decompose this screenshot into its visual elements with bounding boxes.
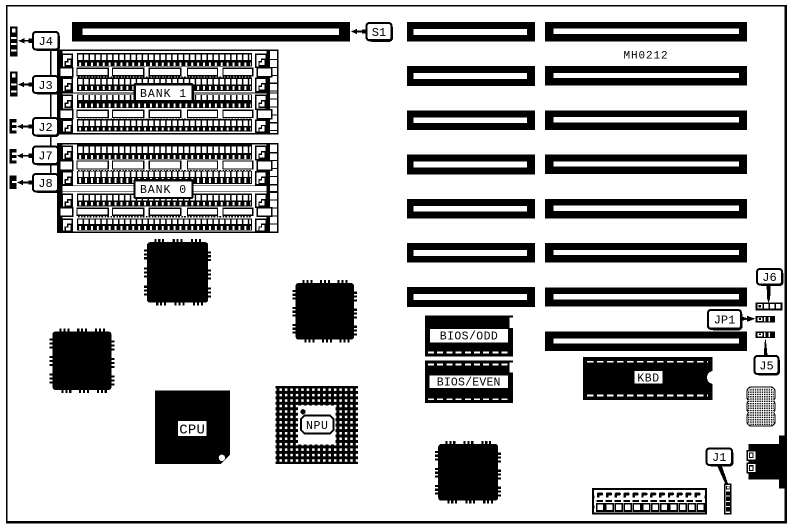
svg-text:BIOS/EVEN: BIOS/EVEN	[437, 377, 501, 390]
svg-text:MH0212: MH0212	[624, 50, 669, 62]
svg-text:CPU: CPU	[179, 423, 205, 439]
svg-text:J8: J8	[38, 177, 52, 191]
svg-text:J6: J6	[762, 271, 776, 285]
svg-text:S1: S1	[372, 26, 386, 40]
svg-text:J3: J3	[38, 79, 52, 93]
svg-text:BANK 0: BANK 0	[140, 184, 187, 197]
svg-text:J7: J7	[38, 150, 52, 164]
svg-text:JP1: JP1	[714, 314, 736, 328]
svg-text:J1: J1	[712, 451, 726, 465]
svg-text:BANK 1: BANK 1	[140, 88, 187, 101]
svg-text:NPU: NPU	[306, 420, 329, 433]
svg-text:J2: J2	[38, 121, 52, 135]
svg-text:BIOS/ODD: BIOS/ODD	[440, 331, 498, 344]
svg-text:KBD: KBD	[637, 372, 660, 385]
svg-text:J4: J4	[39, 35, 53, 49]
svg-text:J5: J5	[759, 359, 773, 373]
